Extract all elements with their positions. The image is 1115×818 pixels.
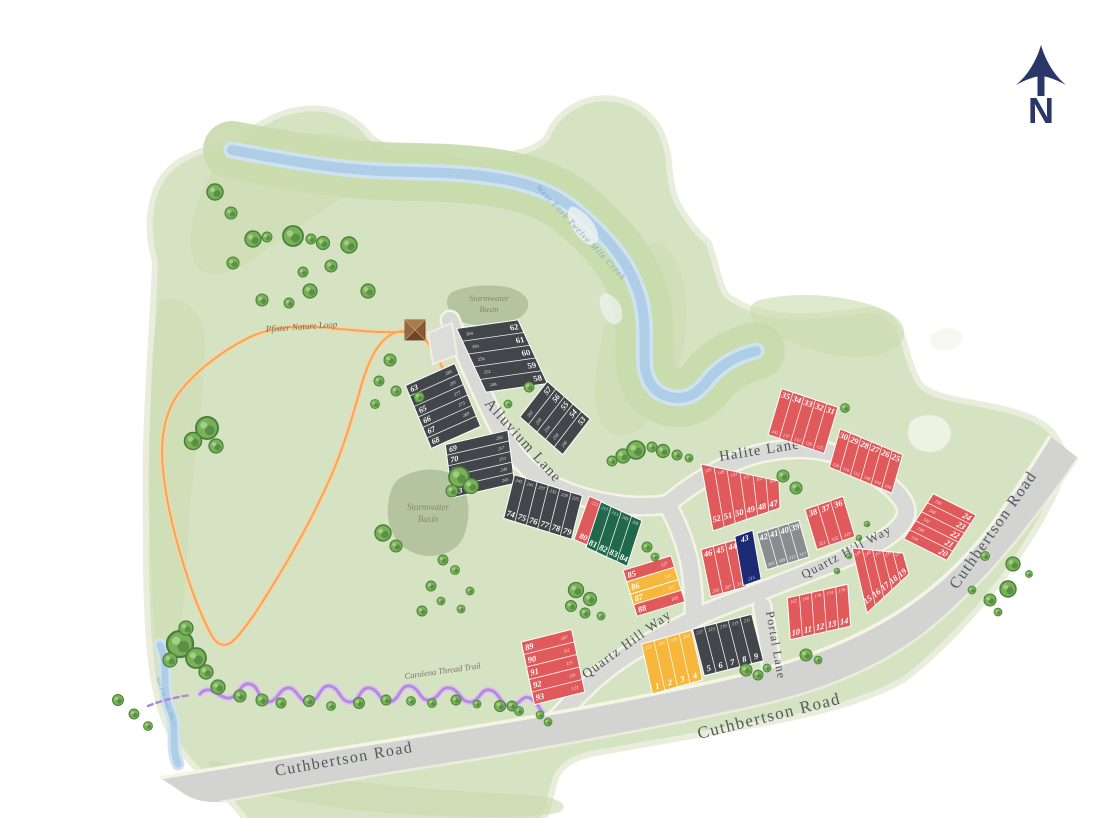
svg-text:69: 69 (448, 443, 457, 454)
svg-text:14: 14 (840, 615, 849, 627)
svg-text:70: 70 (450, 454, 459, 465)
svg-text:13: 13 (828, 618, 838, 630)
svg-text:Stormwater: Stormwater (407, 502, 450, 512)
svg-text:10: 10 (791, 626, 801, 638)
svg-text:Basin: Basin (418, 514, 439, 524)
svg-text:11: 11 (804, 623, 813, 635)
svg-text:Stormwater: Stormwater (469, 293, 509, 303)
svg-text:Basin: Basin (479, 304, 498, 314)
svg-text:N: N (1028, 90, 1054, 131)
svg-text:12: 12 (816, 620, 826, 632)
